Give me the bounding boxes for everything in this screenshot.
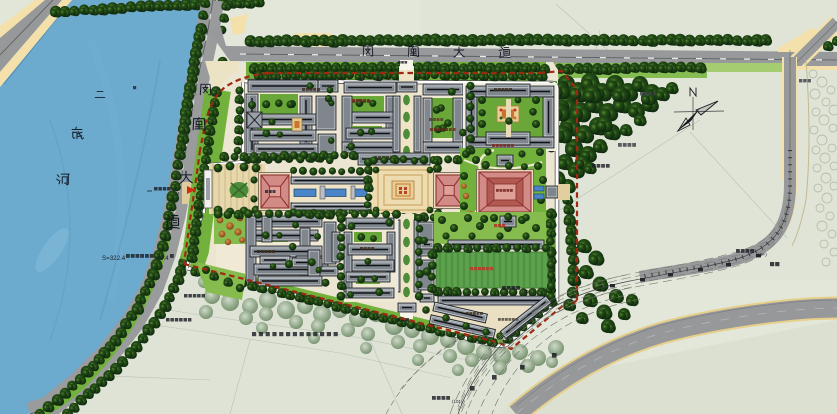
svg-text:(+9+): (+9+): [756, 252, 767, 257]
svg-text:0.4: 0.4: [160, 255, 169, 262]
svg-text:(101): (101): [522, 289, 533, 294]
svg-text:S=322.4: S=322.4: [102, 255, 126, 262]
svg-text:(101): (101): [452, 399, 463, 404]
